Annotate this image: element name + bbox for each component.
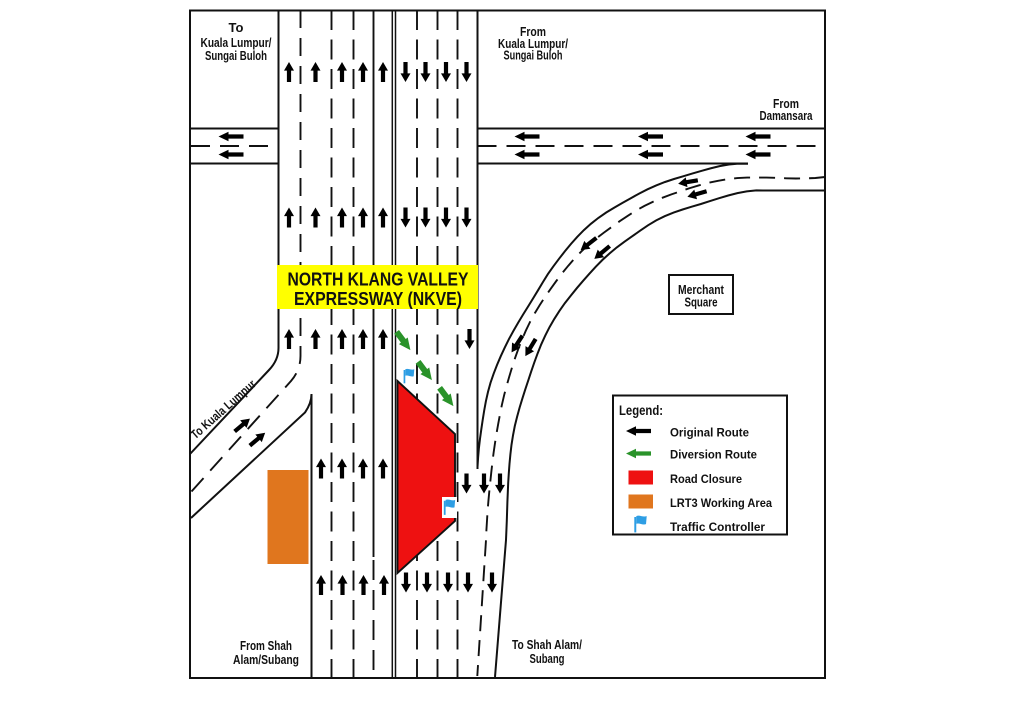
svg-text:Legend:: Legend: bbox=[619, 403, 663, 418]
svg-text:Traffic Controller: Traffic Controller bbox=[670, 522, 766, 534]
svg-text:Damansara: Damansara bbox=[760, 108, 814, 123]
svg-text:To: To bbox=[229, 20, 244, 35]
svg-text:From Shah: From Shah bbox=[240, 638, 292, 653]
svg-text:Original Route: Original Route bbox=[670, 428, 749, 440]
svg-text:Road Closure: Road Closure bbox=[670, 474, 742, 486]
svg-text:To Shah Alam/: To Shah Alam/ bbox=[512, 637, 582, 652]
svg-text:Sungai Buloh: Sungai Buloh bbox=[504, 48, 563, 63]
svg-text:Subang: Subang bbox=[530, 651, 565, 666]
svg-text:Alam/Subang: Alam/Subang bbox=[233, 652, 299, 667]
svg-text:LRT3 Working Area: LRT3 Working Area bbox=[670, 498, 773, 510]
svg-text:Square: Square bbox=[685, 296, 718, 310]
svg-text:Diversion Route: Diversion Route bbox=[670, 450, 757, 462]
svg-text:NORTH KLANG VALLEY: NORTH KLANG VALLEY bbox=[288, 270, 469, 290]
svg-text:EXPRESSWAY (NKVE): EXPRESSWAY (NKVE) bbox=[294, 289, 462, 309]
svg-text:Sungai Buloh: Sungai Buloh bbox=[205, 48, 267, 63]
